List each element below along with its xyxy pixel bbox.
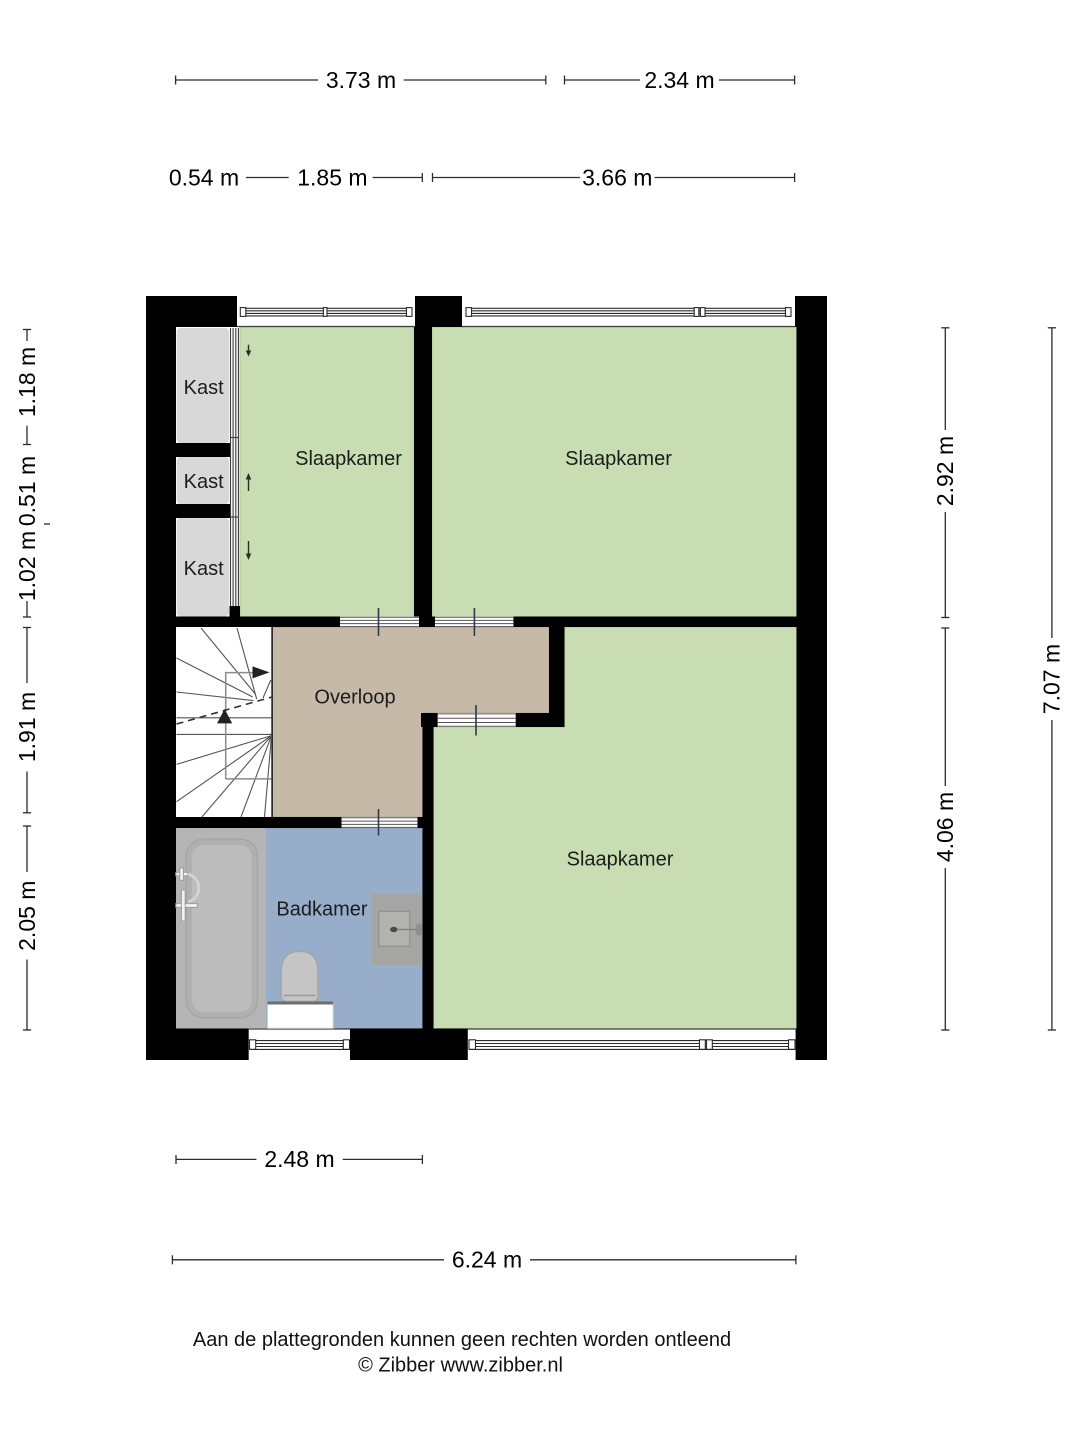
svg-text:Badkamer: Badkamer [276,899,367,921]
svg-text:© Zibber www.zibber.nl: © Zibber www.zibber.nl [358,1355,563,1377]
svg-text:Slaapkamer: Slaapkamer [567,848,674,870]
svg-text:1.02 m: 1.02 m [14,531,40,601]
svg-text:Kast: Kast [184,558,224,580]
svg-text:3.66 m: 3.66 m [582,164,652,190]
svg-text:2.48 m: 2.48 m [264,1146,334,1172]
svg-text:Overloop: Overloop [314,687,395,709]
svg-text:Slaapkamer: Slaapkamer [295,448,402,470]
svg-text:2.05 m: 2.05 m [14,881,40,951]
svg-text:Kast: Kast [184,377,224,399]
svg-text:0.54 m: 0.54 m [169,164,239,190]
svg-text:1.91 m: 1.91 m [14,692,40,762]
svg-text:2.34 m: 2.34 m [644,67,714,93]
svg-text:6.24 m: 6.24 m [452,1247,522,1273]
svg-text:0.51 m: 0.51 m [14,456,40,526]
svg-text:2.92 m: 2.92 m [932,436,958,506]
svg-text:3.73 m: 3.73 m [326,67,396,93]
svg-text:7.07 m: 7.07 m [1039,644,1065,714]
svg-text:4.06 m: 4.06 m [932,792,958,862]
svg-text:Aan de plattegronden kunnen ge: Aan de plattegronden kunnen geen rechten… [193,1329,731,1351]
svg-text:Slaapkamer: Slaapkamer [565,448,672,470]
svg-text:Kast: Kast [184,471,224,493]
svg-text:1.18 m: 1.18 m [14,347,40,417]
svg-text:1.85 m: 1.85 m [297,164,367,190]
